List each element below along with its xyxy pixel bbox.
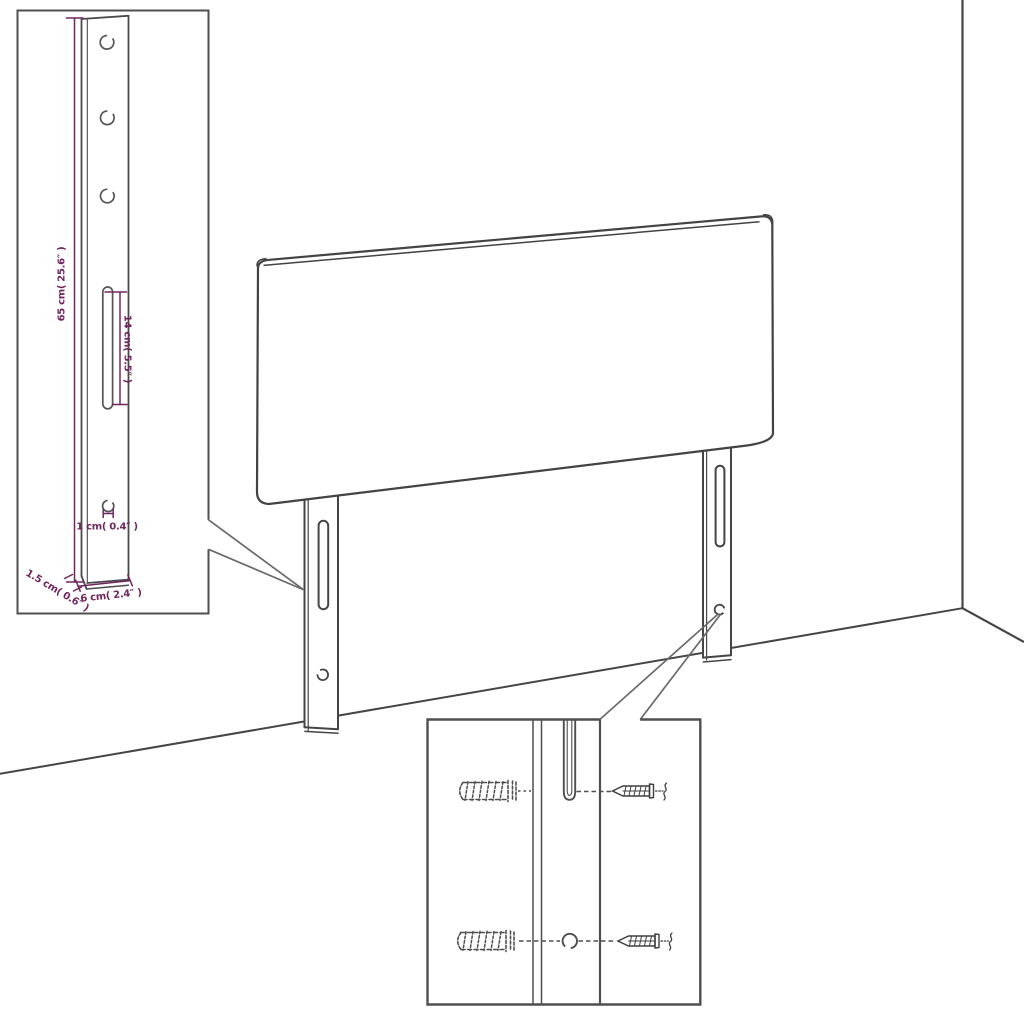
right-leg-slot (716, 466, 725, 547)
diagram-line-art (0, 0, 1024, 1024)
dim-label-hole-diameter: 1 cm( 0.4″ ) (76, 521, 137, 532)
mounting-detail-inset (428, 720, 701, 1005)
dim-label-leg-height: 65 cm( 25.6″ ) (57, 247, 68, 322)
headboard-panel (257, 215, 773, 504)
left-leg (304, 496, 339, 734)
leg-detail-slot (103, 287, 113, 409)
floor-line-right (963, 608, 1024, 642)
dim-label-slot-length: 14 cm( 5.5″ ) (121, 315, 132, 383)
leg-detail-callout-lines (209, 520, 304, 590)
leg-detail-drawing (82, 16, 129, 589)
product-diagram-headboard: 65 cm( 25.6″ ) 14 cm( 5.5″ ) 1 cm( 0.4″ … (0, 0, 1024, 1024)
left-leg-slot (319, 521, 329, 609)
right-leg (703, 448, 732, 662)
